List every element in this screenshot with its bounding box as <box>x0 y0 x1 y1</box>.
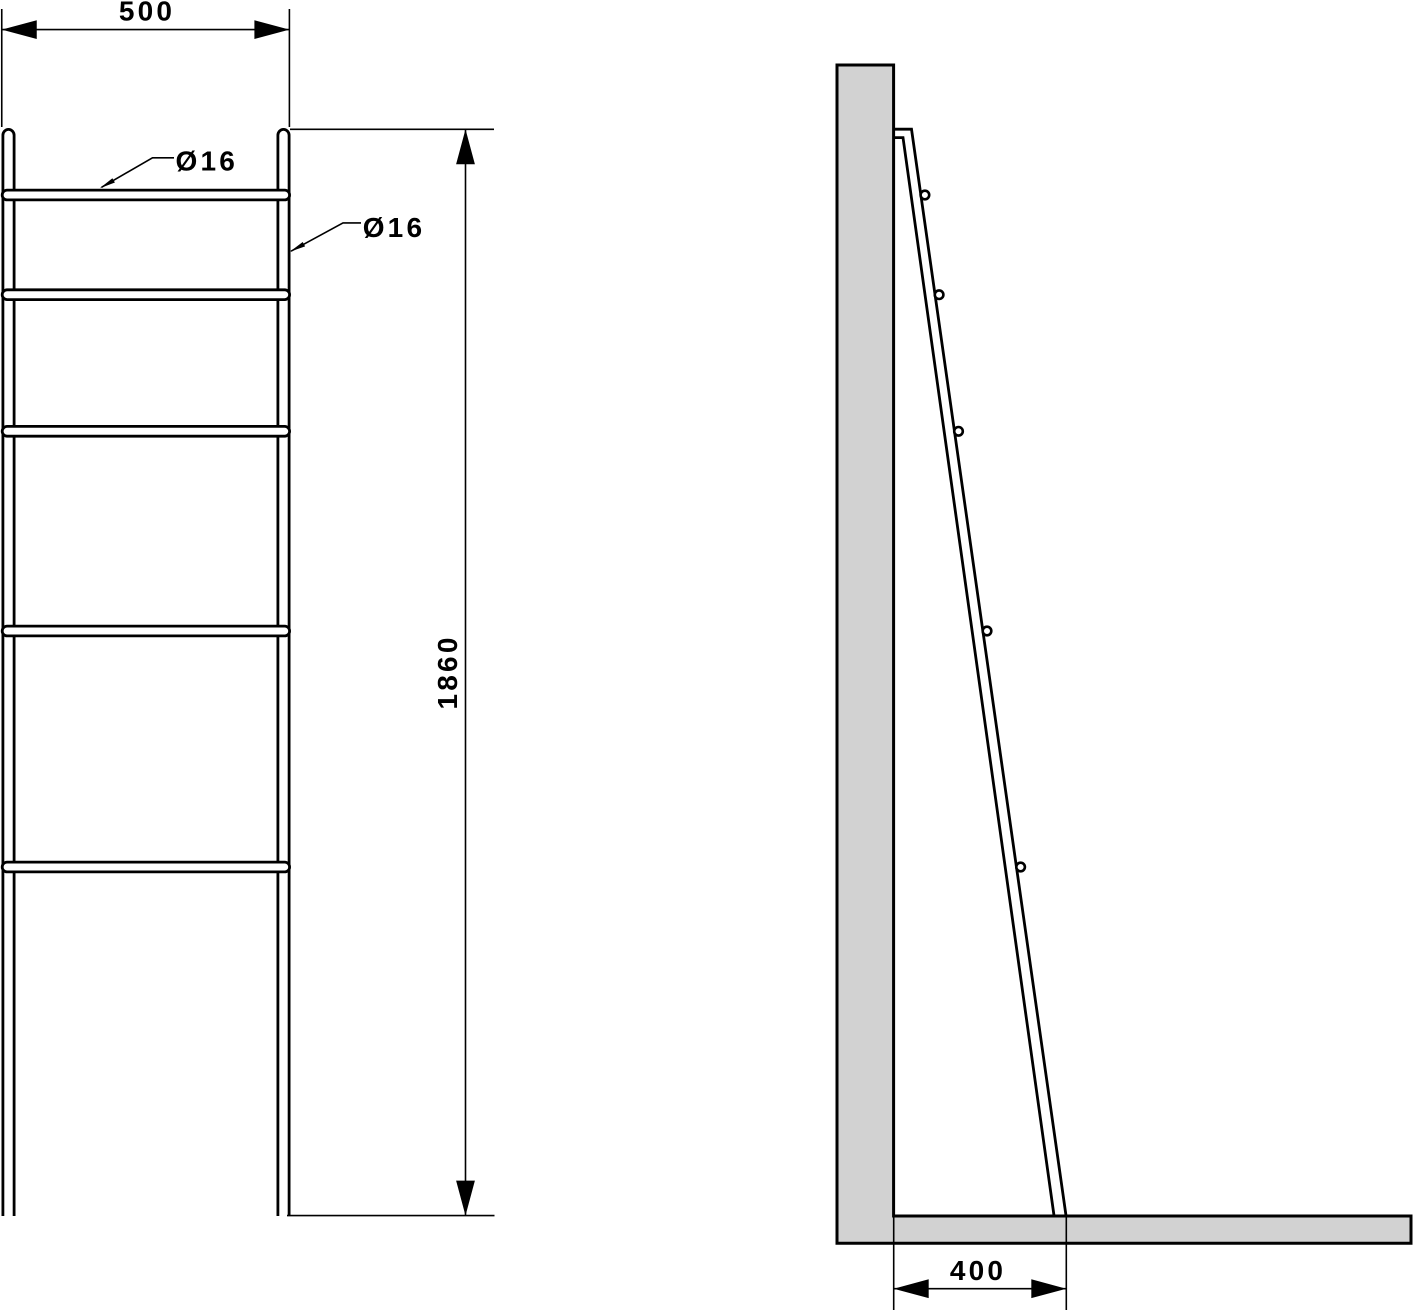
svg-text:Ø16: Ø16 <box>176 145 239 176</box>
svg-text:1860: 1860 <box>432 634 463 709</box>
svg-text:500: 500 <box>119 0 175 27</box>
svg-text:Ø16: Ø16 <box>363 212 426 243</box>
svg-text:400: 400 <box>950 1255 1006 1286</box>
